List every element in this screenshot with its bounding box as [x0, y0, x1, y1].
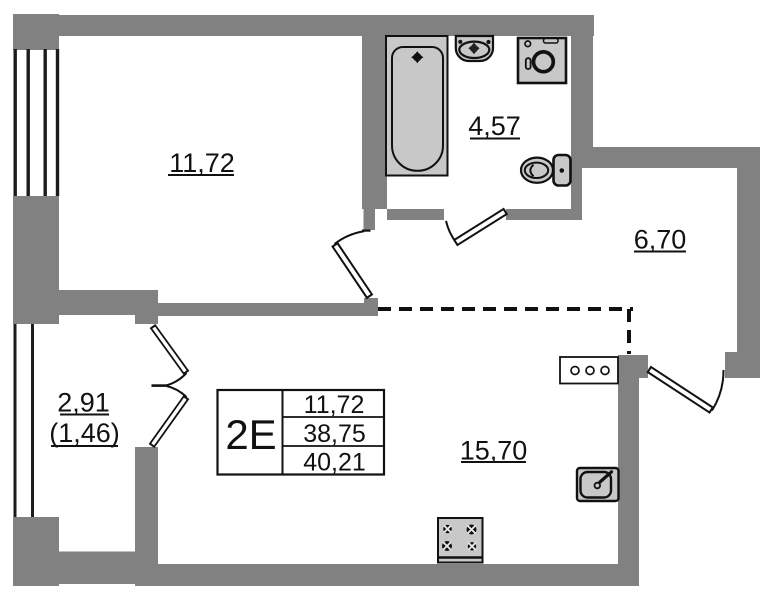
- svg-text:4,57: 4,57: [468, 111, 521, 141]
- svg-text:40,21: 40,21: [303, 449, 366, 477]
- svg-text:38,75: 38,75: [303, 420, 366, 448]
- svg-text:11,72: 11,72: [169, 148, 235, 178]
- svg-text:6,70: 6,70: [634, 225, 687, 255]
- svg-text:(1,46): (1,46): [49, 418, 120, 448]
- svg-text:2,91: 2,91: [57, 388, 110, 418]
- svg-text:2E: 2E: [225, 411, 276, 458]
- svg-text:11,72: 11,72: [304, 391, 365, 419]
